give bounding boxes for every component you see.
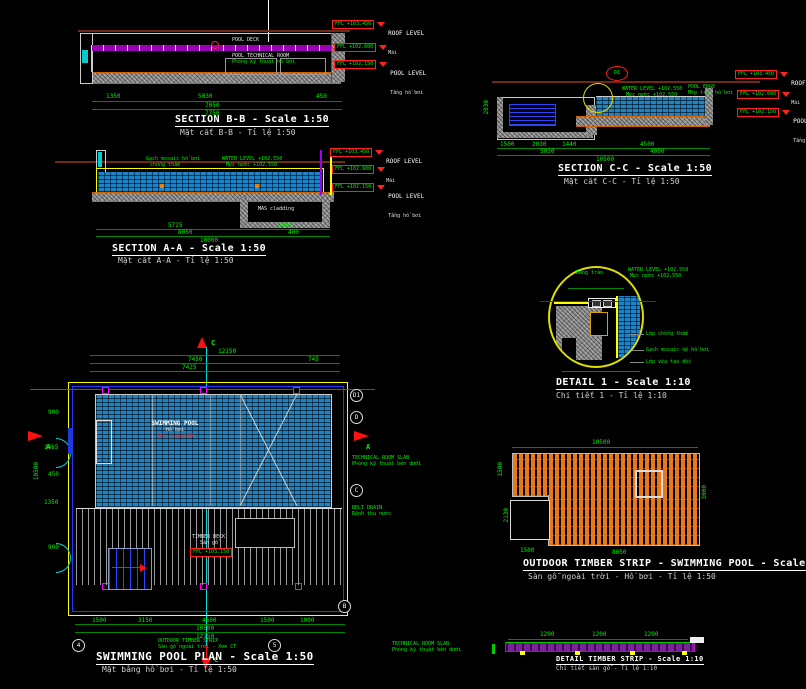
level-value: FFL +103.450 [332,20,374,29]
level-marker-icon [379,62,387,67]
level-name: POOL LEVEL [388,193,424,200]
dim-label: 5030 [198,94,212,100]
strip-title: DETAIL TIMBER STRIP - Scale 1:10 [556,655,704,665]
timber-title: OUTDOOR TIMBER STRIP - SWIMMING POOL - S… [523,558,806,571]
dim-label: 7450 [188,357,202,363]
strip-support [520,651,525,655]
plan-subtitle: Mặt bằng hồ bơi - Tỉ lệ 1:50 [102,665,237,674]
grid-label: B [343,603,347,610]
d1-notch [562,338,576,360]
leader [630,362,644,363]
d1-note-1: Lớp chống thấm [646,331,688,337]
pool-label-group: SWIMMING POOL Hồ bơi FFL +102.400 [130,420,220,439]
grid-label: 5 [273,642,277,649]
bb-pool-deck-label: POOL DECK [232,37,259,43]
aa-anchor-1 [160,184,164,188]
dim-label: 400 [288,230,299,236]
dim-label: 1200 [644,632,658,638]
pool-joint [152,394,153,506]
level-marker-icon [377,22,385,27]
level-value: FFL +103.450 [735,70,777,79]
cad-drawing-viewport: POOL DECK POOL TECHNICAL ROOM Phòng kỹ t… [0,0,806,689]
level-value: FFL +102.150 [737,108,779,117]
grid-label: 4 [77,642,81,649]
level-value: FFL +102.150 [334,60,376,69]
aa-water-note-vn: Mực nước +102.550 [226,162,277,168]
cc-room-floor [497,132,593,138]
dim-label: 745 [308,357,319,363]
plan-note-bottom-right-vn: Phòng kỹ thuật bên dưới [392,647,461,653]
timber-left-box [510,500,550,540]
d1-water [616,296,640,358]
dim-label-vertical: 10500 [34,462,40,480]
dim-label: 450 [316,94,327,100]
level-marker-icon [782,110,790,115]
level-value: FFL +102.600 [334,43,376,52]
bb-subtitle: Mặt cắt B-B - Tỉ lệ 1:50 [180,128,296,137]
d1-note-water-vn: Mực nước +102.550 [630,273,681,279]
level-name: POOL LEVEL [793,118,806,125]
aa-water [98,172,320,192]
dim-label: 1500 [92,618,106,624]
cc-equipment [509,104,556,126]
pool-level: FFL +102.400 [130,433,220,439]
dim-label: 450 [48,472,59,478]
dim-label: 1350 [44,500,58,506]
dim-label: 1200 [592,632,606,638]
stair-direction-arrow-icon [140,564,147,572]
d1-circle [548,266,644,368]
dim-label: 3150 [138,618,152,624]
level-marker-icon [782,92,790,97]
timber-cutout [635,470,663,498]
plan-section-mark-top: C [211,339,215,347]
strip-left-mark [492,644,495,654]
deck-name-vn: Sàn gỗ [200,540,218,546]
dim-label: 10500 [196,626,214,632]
roof-line [78,30,350,32]
deck-level: FFL +103.150 [190,548,232,557]
pool-joint [210,394,211,506]
cc-level-mid: FFL +102.600 [737,90,790,99]
dim-line [90,355,340,356]
dim-label: 10500 [592,440,610,446]
level-name-vn: Mái [791,100,800,106]
leader [632,350,644,351]
drain-point [102,387,109,394]
dim-label: 1350 [106,94,120,100]
cc-level-roof: FFL +103.450 ROOF LEVEL Mái [735,70,806,108]
grid-bubble-b: B [338,600,351,613]
dim-label: 4000 [650,149,664,155]
cc-pool-slab [576,116,710,127]
drain-point [293,387,300,394]
plan-note-right1-vn: Phòng kỹ thuật bên dưới [352,461,421,467]
dim-line [508,639,688,640]
aa-anchor-2 [255,184,259,188]
dim-label-vertical: 1500 [498,462,504,476]
level-value: FFL +103.450 [330,148,372,157]
aa-level-mid: FFL +102.600 [332,165,385,174]
dim-line [90,371,340,372]
cc-level-pool: FFL +102.150 POOL LEVEL Tầng hồ bơi [737,108,806,146]
bb-level-mid: FFL +102.600 [334,43,387,52]
grid-bubble-4: 4 [72,639,85,652]
dim-label: 1200 [540,632,554,638]
plan-pool-bench [96,420,112,464]
dim-label: 1500 [500,142,514,148]
plan-section-mark-left: A [46,443,50,451]
level-name: POOL LEVEL [390,70,426,77]
level-marker-icon [780,72,788,77]
level-value: FFL +102.150 [332,183,374,192]
grid-label: D1 [353,392,360,399]
dim-label: 7425 [182,365,196,371]
strip-subtitle: Chi tiết sàn gỗ - Tỉ lệ 1:10 [556,665,657,672]
grid-label: C [355,487,359,494]
aa-subtitle: Mặt cắt A-A - Tỉ lệ 1:50 [118,256,234,265]
d1-dim-line [562,371,640,372]
d1-gutter-void [590,312,608,336]
d1-title: DETAIL 1 - Scale 1:10 [556,377,691,390]
grid-bubble-c: C [350,484,363,497]
bb-level-roof: FFL +103.450 ROOF LEVEL Mái [332,20,424,58]
level-value: FFL +102.600 [332,165,374,174]
pool-x-brace [240,394,297,506]
d1-subtitle: Chi tiết 1 - Tỉ lệ 1:10 [556,391,667,400]
aa-note-left2: chống thấm [150,162,180,168]
strip-end-block [690,637,704,643]
level-marker-icon [379,45,387,50]
cc-edge-note-vn: Mép tràn hồ bơi [688,90,733,96]
aa-left-wall-cyan [98,152,102,167]
cc-detail-circle [583,83,613,113]
level-name-vn: Mái [388,50,397,56]
dim-label: 1500 [260,618,274,624]
d1-grate [588,298,616,308]
aa-title: SECTION A-A - Scale 1:50 [112,243,266,256]
dim-label: 8050 [178,230,192,236]
bb-title: SECTION B-B - Scale 1:50 [175,114,329,127]
strip-bar [505,642,695,652]
dim-label: 1500 [520,548,534,554]
dim-line [512,447,698,448]
dim-label: 7050 [205,103,219,109]
dim-label-vertical: 2030 [484,100,490,114]
level-name-vn: Tầng hồ bơi [388,213,421,219]
level-name-vn: Tầng hồ bơi [793,138,806,144]
level-marker-icon [377,167,385,172]
plan-title: SWIMMING POOL PLAN - Scale 1:50 [96,650,314,665]
d1-note-2: Gạch mosaic ốp hồ bơi [646,347,709,353]
aa-level-pool: FFL +102.150 POOL LEVEL Tầng hồ bơi [332,183,424,221]
bb-target-circle [211,41,219,49]
level-marker-icon [377,185,385,190]
timber-area-top [512,453,700,497]
timber-area-bottom [548,495,700,546]
pool-name: SWIMMING POOL [130,420,220,427]
detail-bubble-label: D1 [614,70,620,76]
plan-section-mark-right: A [366,443,370,451]
level-name: ROOF LEVEL [388,30,424,37]
dim-label: 900 [48,410,59,416]
level-value: FFL +102.600 [737,90,779,99]
dim-label: 8050 [612,550,626,556]
d1-dim-ticks [568,288,624,289]
level-name-vn: Tầng hồ bơi [390,90,423,96]
dim-line [90,363,340,364]
stair-direction-line [112,567,140,568]
dim-label-vertical: 2130 [504,508,510,522]
d1-note-3: Lớp vữa tạo dốc [646,359,691,365]
bb-left-wall-cyan [82,50,88,63]
aa-floor-slab [92,192,334,202]
dim-label: 900 [48,545,59,551]
leader [630,334,644,335]
dim-line [497,148,710,149]
level-marker-icon [375,150,383,155]
aa-cladding-label: MAS cladding [258,206,294,212]
plan-left-fitting [68,428,73,454]
level-name: ROOF LEVEL [791,80,806,87]
dim-label: 12150 [218,349,236,355]
bb-tech-room-label-vn: Phòng kỹ thuật hồ bơi [232,59,295,65]
plan-section-mark-right-icon [354,431,369,441]
cc-subtitle: Mặt cắt C-C - Tỉ lệ 1:50 [564,177,680,186]
deck-opening [235,518,295,548]
cc-title: SECTION C-C - Scale 1:50 [558,163,712,176]
cc-detail-bubble: D1 [606,66,628,81]
plan-note-right2-vn: Rãnh thu nước [352,511,391,517]
cc-water-note-vn: Mực nước +102.550 [626,92,677,98]
drain-point [200,387,207,394]
plan-section-mark-left-icon [28,431,43,441]
level-name: ROOF LEVEL [386,158,422,165]
dim-label: 1000 [300,618,314,624]
dim-label: 5030 [540,149,554,155]
grid-bubble-d: D [350,411,363,424]
grid-bubble-d1: D1 [350,389,363,402]
dim-label: 1440 [562,142,576,148]
roof-line [492,81,760,83]
timber-subtitle: Sàn gỗ ngoài trời - Hồ bơi - Tỉ lệ 1:50 [528,572,716,581]
bb-level-pool: FFL +102.150 POOL LEVEL Tầng hồ bơi [334,60,426,98]
dim-label-vertical: 3000 [702,485,708,499]
grid-label: D [355,414,359,421]
d1-roof-line [540,301,656,302]
dim-label: 4500 [202,618,216,624]
d1-note-top: Máng tràn [576,270,603,276]
